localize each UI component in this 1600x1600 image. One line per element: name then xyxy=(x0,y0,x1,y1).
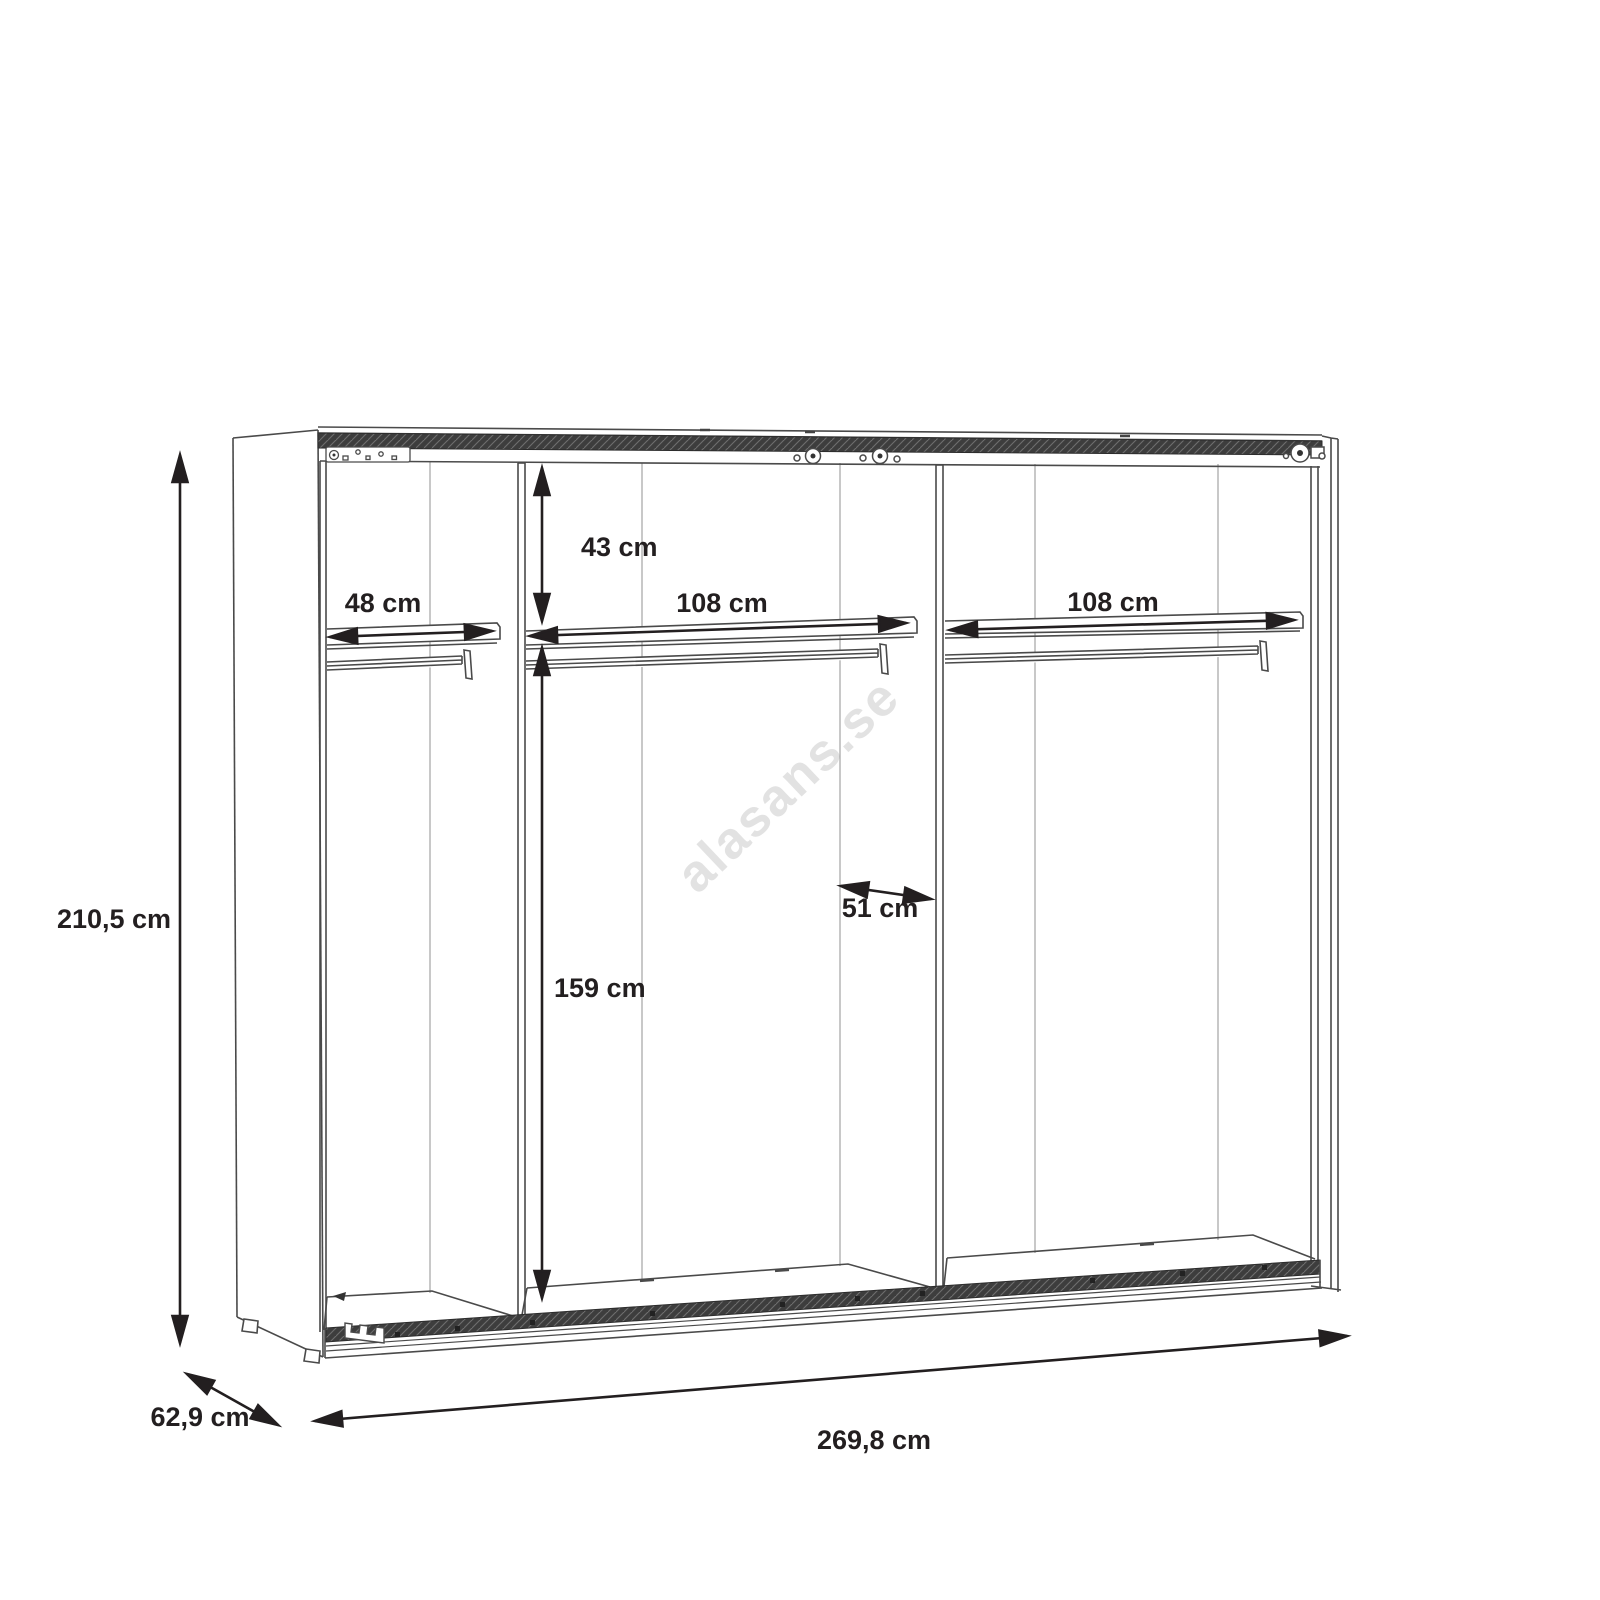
rail-end-bracket xyxy=(880,644,888,674)
dimension-label-overall-depth: 62,9 cm xyxy=(150,1402,249,1432)
dimension-label-overall-height: 210,5 cm xyxy=(57,904,171,934)
dimension-label-hanging-height: 159 cm xyxy=(554,973,646,1003)
wardrobe-technical-drawing: alasans.se xyxy=(0,0,1600,1600)
left-door-carriage xyxy=(326,447,410,462)
back-foot xyxy=(304,1349,320,1363)
dimension-label-center-shelf-width: 108 cm xyxy=(676,588,768,618)
dimension-label-right-shelf-width: 108 cm xyxy=(1067,587,1159,617)
rail-end-bracket xyxy=(464,650,472,679)
dimension-label-interior-depth: 51 cm xyxy=(842,893,919,923)
dimension-label-left-shelf-width: 48 cm xyxy=(345,588,422,618)
dimension-label-top-shelf-drop: 43 cm xyxy=(581,532,658,562)
dimension-label-overall-width: 269,8 cm xyxy=(817,1425,931,1455)
wardrobe-technical-drawing-canvas: alasans.se xyxy=(0,0,1600,1600)
floor-joint-mark xyxy=(1140,1244,1154,1245)
front-foot xyxy=(242,1319,258,1333)
rail-end-bracket xyxy=(1260,641,1268,671)
